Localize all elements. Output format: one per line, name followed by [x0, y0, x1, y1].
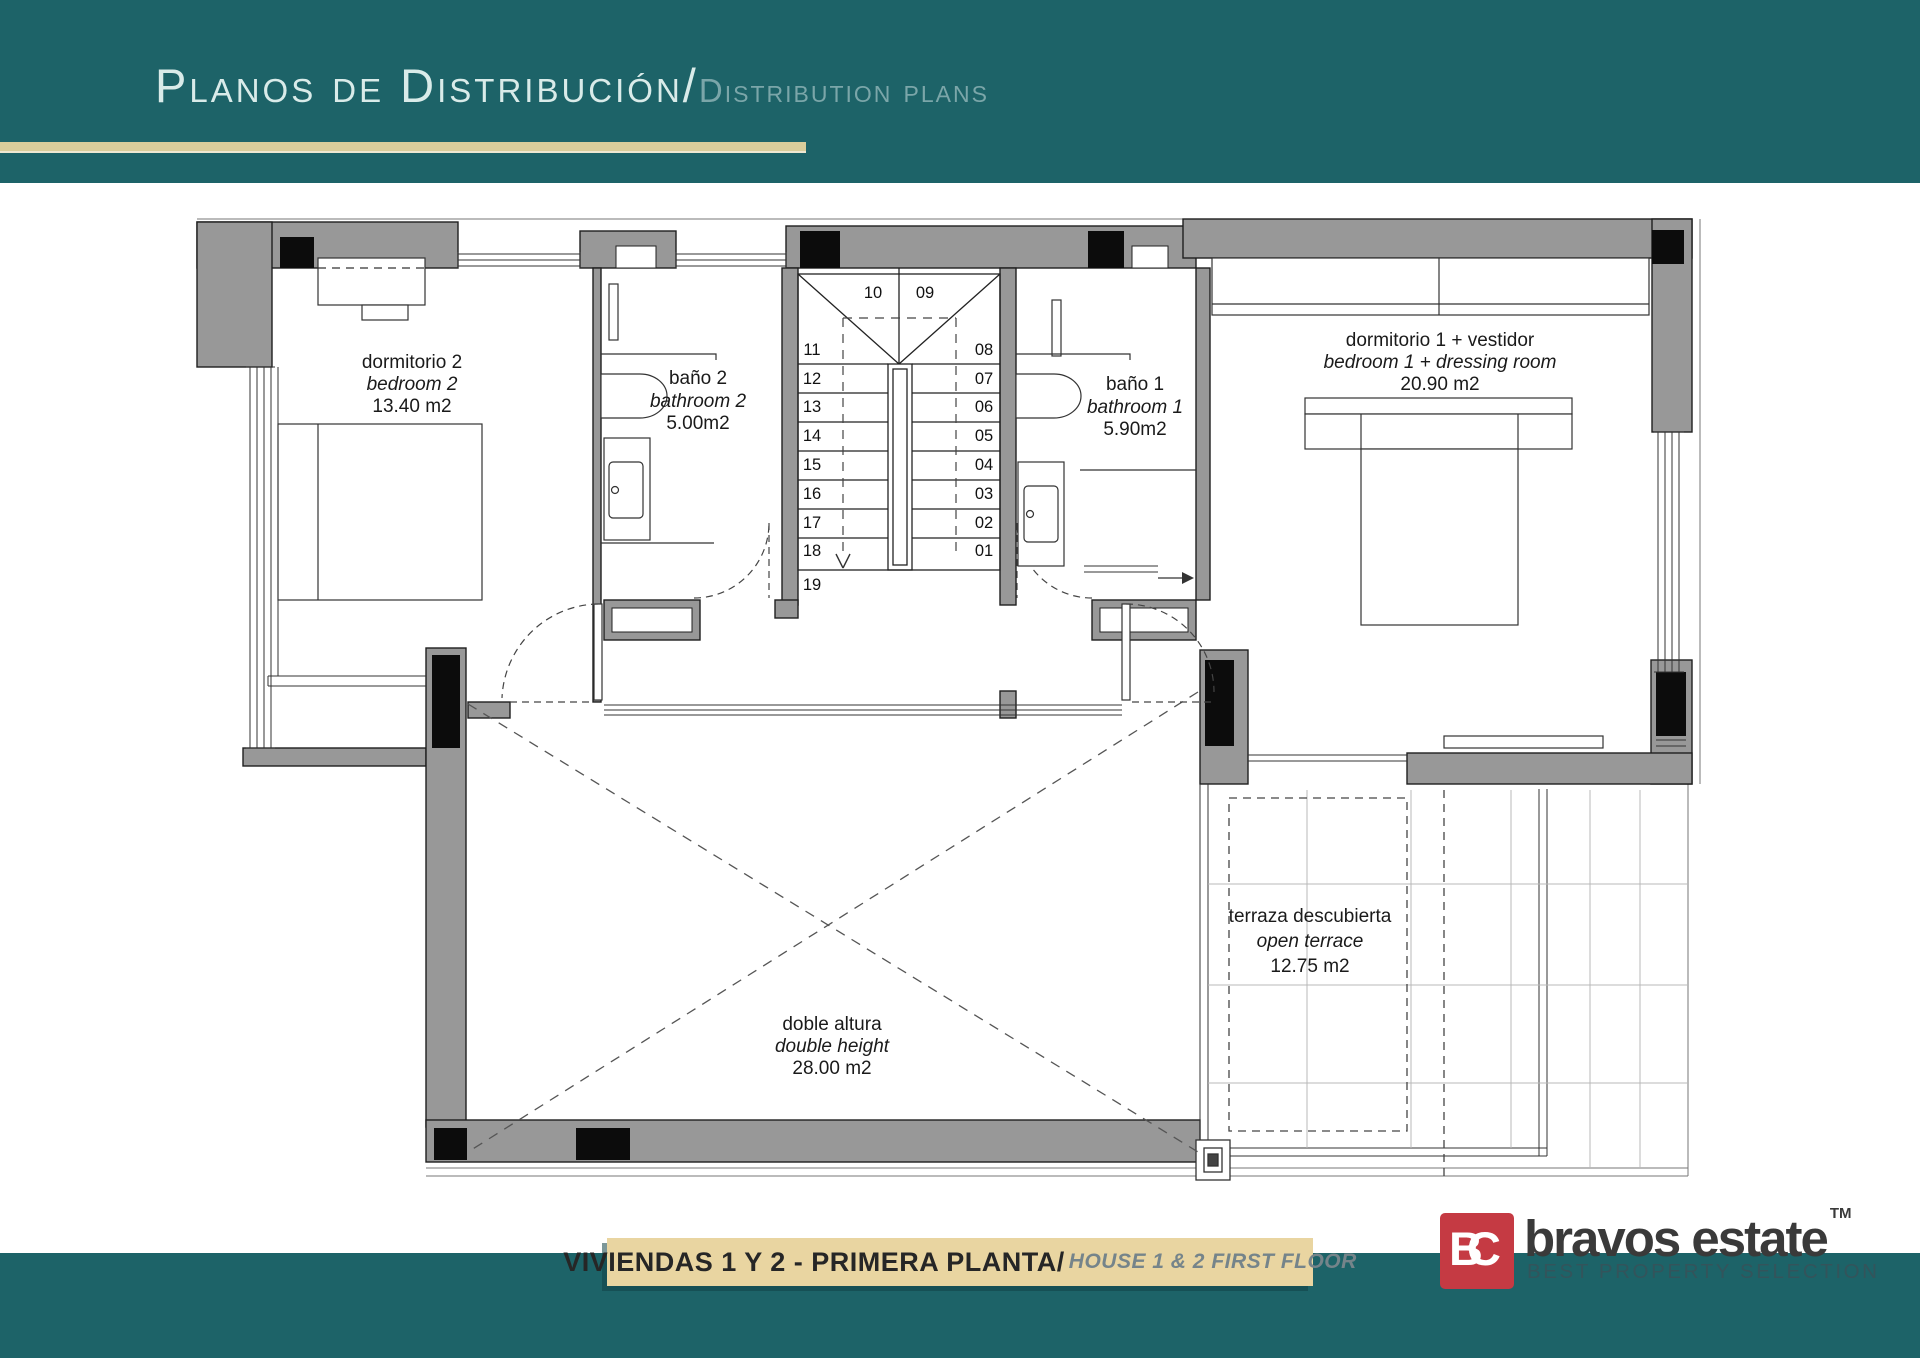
- label-bathroom1: baño 1 bathroom 1 5.90m2: [1087, 374, 1183, 440]
- logo-trademark: TM: [1830, 1205, 1852, 1222]
- wall-bottom-band: [426, 1120, 1200, 1162]
- column-icon: [800, 231, 840, 268]
- stair-step-label: 15: [803, 456, 821, 474]
- wall-bedroom1-south: [1407, 753, 1692, 784]
- room-name-en: open terrace: [1257, 931, 1364, 952]
- column-icon: [280, 237, 314, 268]
- room-area: 28.00 m2: [792, 1058, 871, 1079]
- floor-banner-english: HOUSE 1 & 2 FIRST FLOOR: [1069, 1250, 1357, 1274]
- column-icon: [1656, 672, 1686, 736]
- shower-screen-2: [609, 284, 618, 340]
- wall-left-bottom-l: [243, 748, 426, 766]
- floor-banner-spanish: VIVIENDAS 1 Y 2 - PRIMERA PLANTA/: [563, 1247, 1065, 1278]
- stair-step-label: 19: [803, 576, 821, 594]
- sink-1-icon: [1018, 462, 1064, 566]
- room-area: 13.40 m2: [372, 396, 451, 417]
- column-icon: [432, 655, 460, 748]
- room-name: dormitorio 2: [362, 352, 462, 373]
- room-area: 20.90 m2: [1400, 374, 1479, 395]
- stair-step-label: 05: [975, 427, 993, 445]
- stair-step-label: 07: [975, 370, 993, 388]
- brochure-page: Planos de Distribución/Distribution plan…: [0, 0, 1920, 1358]
- stair-step-label: 12: [803, 370, 821, 388]
- room-name: baño 1: [1106, 374, 1164, 395]
- stair-step-label: 18: [803, 542, 821, 560]
- room-name-en: bathroom 2: [650, 391, 747, 412]
- room-name: dormitorio 1 + vestidor: [1346, 330, 1535, 351]
- wardrobe-bedroom1: [1212, 258, 1649, 315]
- logo-tagline: BEST PROPERTY SELECTION: [1527, 1260, 1880, 1284]
- stair-step-label: 09: [916, 284, 934, 302]
- label-void: doble altura double height 28.00 m2: [775, 1014, 890, 1079]
- stair-step-label: 02: [975, 514, 993, 532]
- logo-bc-icon: BC: [1440, 1213, 1514, 1289]
- counter-line-1: [1016, 354, 1130, 360]
- stairs: [798, 268, 1000, 570]
- bed-bedroom1: [1305, 398, 1572, 625]
- room-area: 5.90m2: [1103, 419, 1166, 440]
- stair-step-label: 03: [975, 485, 993, 503]
- wall-bathroom2-door-stub: [775, 600, 798, 618]
- stair-step-label: 16: [803, 485, 821, 503]
- wall-hall-south-left: [468, 702, 510, 718]
- label-terrace: terraza descubierta open terrace 12.75 m…: [1229, 906, 1392, 977]
- column-icon: [1652, 230, 1684, 264]
- stair-step-label: 01: [975, 542, 993, 560]
- bench-bedroom1: [1444, 736, 1603, 748]
- sink-2-icon: [604, 438, 650, 540]
- bed-bedroom2: [278, 424, 482, 600]
- room-name: terraza descubierta: [1229, 906, 1392, 927]
- stair-step-label: 14: [803, 427, 821, 445]
- stair-step-label: 13: [803, 398, 821, 416]
- room-name: baño 2: [669, 368, 727, 389]
- column-icon: [1088, 231, 1124, 268]
- wall-stair-left: [782, 268, 798, 605]
- stair-step-label: 10: [864, 284, 882, 302]
- floor-plan: 10 09 11 12 13 14 15 16 17 18 19 08 07 0…: [0, 0, 1920, 1358]
- label-bathroom2: baño 2 bathroom 2 5.00m2: [650, 368, 747, 434]
- wall-stair-right: [1000, 268, 1016, 605]
- shower-screen-1: [1052, 300, 1061, 356]
- stair-step-label: 08: [975, 341, 993, 359]
- desk-bedroom2: [318, 258, 425, 320]
- room-name-en: double height: [775, 1036, 890, 1057]
- column-icon: [576, 1128, 630, 1160]
- room-name-en: bedroom 2: [367, 374, 458, 395]
- column-icon: [1205, 660, 1234, 746]
- stair-step-label: 11: [803, 341, 820, 359]
- door-bathroom2: [694, 523, 769, 598]
- column-icon: [434, 1128, 467, 1160]
- room-name-en: bathroom 1: [1087, 397, 1183, 418]
- stair-step-label: 04: [975, 456, 993, 474]
- void-cross: [468, 692, 1198, 1152]
- wall-bedroom1-top: [1183, 219, 1692, 258]
- floor-banner: VIVIENDAS 1 Y 2 - PRIMERA PLANTA/ HOUSE …: [607, 1238, 1313, 1286]
- room-name-en: bedroom 1 + dressing room: [1324, 352, 1557, 373]
- wall-left-upper: [197, 222, 272, 367]
- stair-step-label: 06: [975, 398, 993, 416]
- label-bedroom1: dormitorio 1 + vestidor bedroom 1 + dres…: [1324, 330, 1557, 395]
- door-bedroom2: [502, 604, 602, 702]
- room-area: 12.75 m2: [1270, 956, 1349, 977]
- room-area: 5.00m2: [666, 413, 729, 434]
- stair-arrow-icon: [836, 554, 850, 568]
- terrace-grid: [1208, 790, 1688, 1168]
- counter-line-2: [601, 354, 716, 360]
- wall-bathroom1-right: [1196, 268, 1210, 600]
- logo-brand-text: bravos estate: [1524, 1210, 1827, 1267]
- room-name: doble altura: [782, 1014, 882, 1035]
- bathtub-1-icon: [1016, 374, 1081, 418]
- entry-arrow-icon: [1158, 572, 1194, 584]
- logo-brand: bravos estateTM: [1524, 1205, 1852, 1268]
- stair-step-label: 17: [803, 514, 821, 532]
- terrace-boundary: [1200, 784, 1547, 1156]
- logo-initials: BC: [1449, 1221, 1485, 1276]
- terrace-drain: [1196, 1140, 1230, 1180]
- label-bedroom2: dormitorio 2 bedroom 2 13.40 m2: [362, 352, 462, 417]
